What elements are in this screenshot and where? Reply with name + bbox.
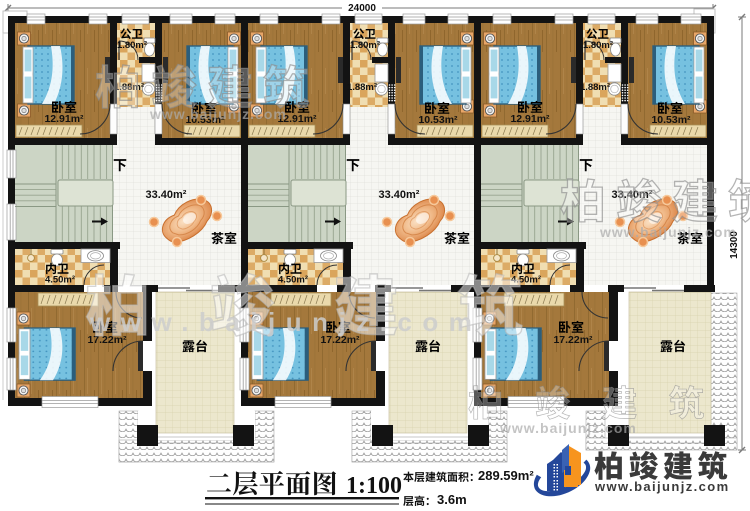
svg-text:1.80m²: 1.80m² — [117, 40, 147, 51]
svg-text:17.22m²: 17.22m² — [553, 334, 593, 346]
svg-text:1.88m²: 1.88m² — [580, 82, 610, 93]
svg-text:1:100: 1:100 — [346, 473, 402, 499]
svg-text:1.80m²: 1.80m² — [350, 40, 380, 51]
svg-text:10.53m²: 10.53m² — [418, 114, 458, 126]
svg-text:3.6m: 3.6m — [437, 492, 467, 507]
svg-text:33.40m²: 33.40m² — [146, 189, 187, 201]
svg-text:www.baijunjz.com: www.baijunjz.com — [89, 307, 482, 337]
svg-text:www.baijunjz.com: www.baijunjz.com — [149, 106, 287, 122]
svg-text:33.40m²: 33.40m² — [379, 189, 420, 201]
svg-text:4.50m²: 4.50m² — [278, 275, 308, 286]
svg-text:24000: 24000 — [348, 3, 376, 14]
svg-text:1.80m²: 1.80m² — [583, 40, 613, 51]
svg-text:www.baijunjz.com: www.baijunjz.com — [599, 224, 737, 240]
svg-text:12.91m²: 12.91m² — [510, 113, 550, 125]
svg-text:1.88m²: 1.88m² — [347, 82, 377, 93]
svg-text:12.91m²: 12.91m² — [44, 113, 84, 125]
svg-text:www.baijunjz.com: www.baijunjz.com — [594, 479, 730, 494]
svg-text:289.59m²: 289.59m² — [478, 468, 534, 483]
svg-text:10.53m²: 10.53m² — [651, 114, 691, 126]
svg-text:www.baijunjz.com: www.baijunjz.com — [499, 420, 637, 436]
svg-text:4.50m²: 4.50m² — [45, 275, 75, 286]
